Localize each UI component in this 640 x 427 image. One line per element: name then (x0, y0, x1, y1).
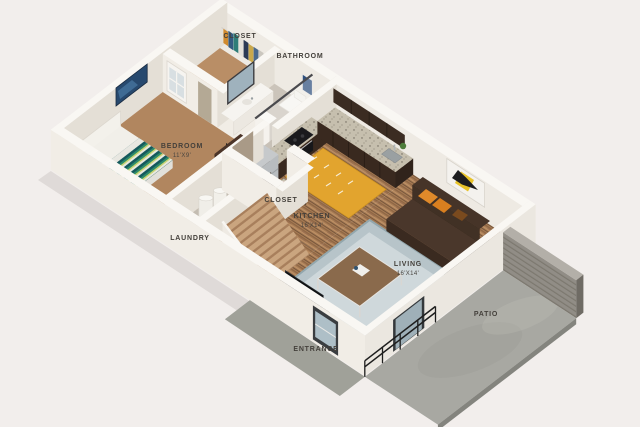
label-living: LIVING (394, 261, 422, 268)
vanity-sink (242, 99, 252, 105)
counter-plant (400, 143, 406, 149)
garment (249, 44, 254, 63)
tank-top (199, 195, 213, 201)
label-closet-mid: CLOSET (264, 197, 297, 204)
garment (244, 40, 249, 60)
faucet (251, 97, 253, 99)
floorplan-svg: CLOSET BATHROOM BEDROOM 11'X9' LAUNDRY C… (0, 0, 640, 427)
label-bedroom-dim: 11'X9' (173, 153, 191, 159)
label-kitchen-dim: 16'X14' (301, 223, 323, 229)
label-kitchen: KITCHEN (294, 213, 331, 220)
label-bathroom: BATHROOM (276, 53, 323, 60)
floorplan-image: CLOSET BATHROOM BEDROOM 11'X9' LAUNDRY C… (0, 0, 640, 427)
label-patio: PATIO (474, 311, 498, 318)
label-bedroom: BEDROOM (161, 143, 203, 150)
label-living-dim: 16'X14' (397, 271, 419, 277)
burner (293, 138, 297, 142)
label-laundry: LAUNDRY (170, 235, 210, 242)
siding-wall-end (576, 275, 583, 319)
burner (301, 134, 305, 138)
label-closet-top: CLOSET (223, 33, 256, 40)
vase (354, 266, 358, 270)
label-entrance: ENTRANCE (293, 346, 338, 353)
